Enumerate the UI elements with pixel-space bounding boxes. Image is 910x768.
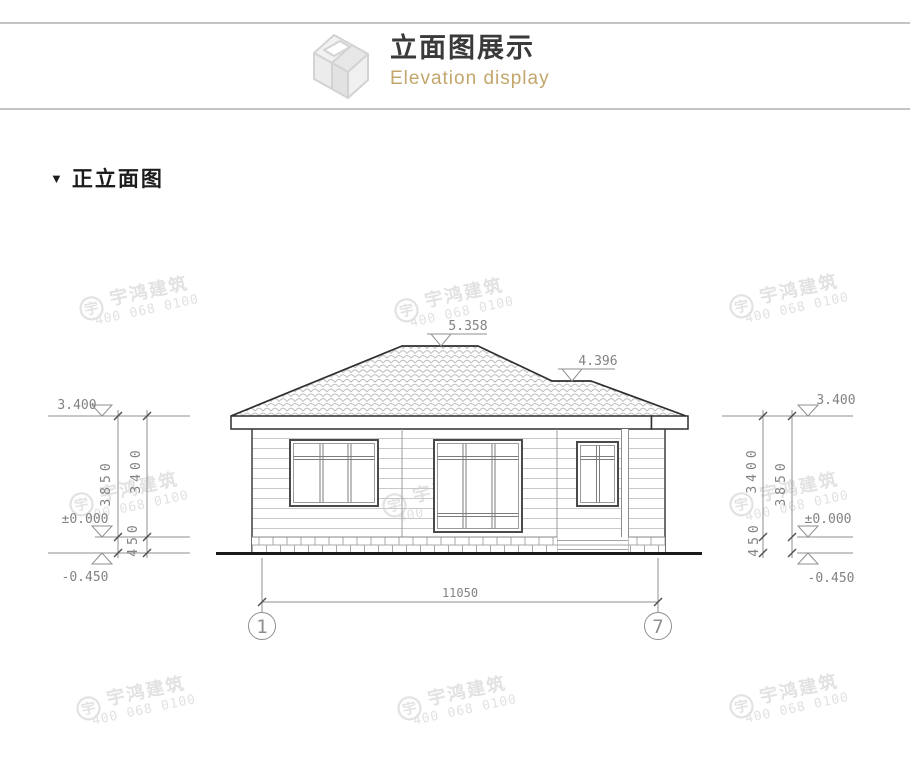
axis-number-left: 1 (256, 616, 267, 638)
floor-level-text-left: ±0.000 (62, 512, 109, 527)
entrance-steps (557, 541, 628, 550)
corner-trim (622, 429, 629, 537)
window-center (434, 440, 522, 532)
ridge-level-text: 5.358 (448, 319, 487, 334)
axis-number-right: 7 (652, 616, 663, 638)
bottom-dimension: 11050 1 7 (249, 558, 672, 640)
window-left (290, 440, 378, 506)
eave-level-text-right: 3.400 (816, 393, 855, 408)
ground-level-text-right: -0.450 (808, 571, 855, 586)
level-marker-step: 4.396 (558, 354, 618, 381)
elevation-drawing: 宇 宇鸿建筑 400 068 0100 (0, 0, 910, 768)
total-width-dim: 11050 (442, 586, 478, 600)
hipped-roof (231, 346, 686, 416)
overall-height-dim-left: 3850 (99, 459, 114, 506)
eave-fascia (231, 416, 688, 429)
ground-level-text-left: -0.450 (62, 570, 109, 585)
wall-height-dim-right: 3400 (745, 446, 760, 493)
eave-level-text-left: 3.400 (57, 398, 96, 413)
wall-height-dim-left: 3400 (129, 446, 144, 493)
plinth-height-dim-left: 450 (126, 521, 141, 556)
plinth-height-dim-right: 450 (747, 521, 762, 556)
window-right (577, 442, 618, 506)
overall-height-dim-right: 3850 (774, 459, 789, 506)
step-level-text: 4.396 (578, 354, 617, 369)
floor-level-text-right: ±0.000 (805, 512, 852, 527)
house-elevation (216, 346, 702, 554)
